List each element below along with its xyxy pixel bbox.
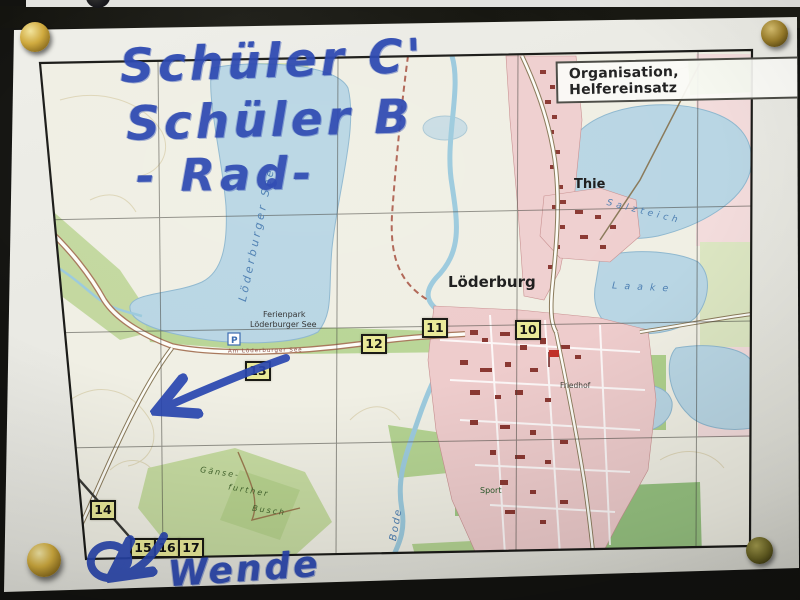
town-label-thie: Thie [574,177,605,192]
checkpoint-marker-12: 12 [361,334,387,354]
town-label-loederburg: Löderburg [448,273,536,291]
photo-of-pinned-map: { "scene": { "board_color": "#131310", "… [0,0,800,600]
handwriting-line-2: Schüler B [125,89,414,152]
paper-sheet: P Organisation, Helfereinsatz Löderburg … [0,0,800,600]
cemetery-label: Friedhof [560,381,590,390]
push-pin-bottom-left [27,543,61,577]
parking-letter: P [231,336,238,346]
upper-sheet-edge [26,0,800,7]
checkpoint-marker-10: 10 [515,320,541,340]
checkpoint-marker-15: 15 [130,538,156,558]
push-pin-top-right [761,20,788,47]
sport-label: Sport [480,486,501,495]
ferienpark-label-line1: Ferienpark [263,310,306,319]
handwriting-line-1: Schüler C' [119,29,426,95]
checkpoint-marker-11: 11 [422,318,448,338]
checkpoint-marker-13: 13 [245,361,271,381]
ferienpark-label-line2: Löderburger See [250,320,317,329]
checkpoint-marker-14: 14 [90,500,116,520]
push-pin-bottom-right [746,537,773,564]
legend-box: Organisation, Helfereinsatz [556,56,800,103]
handwriting-line-3: - Rad- [136,146,317,202]
push-pin-top-left [20,22,50,52]
